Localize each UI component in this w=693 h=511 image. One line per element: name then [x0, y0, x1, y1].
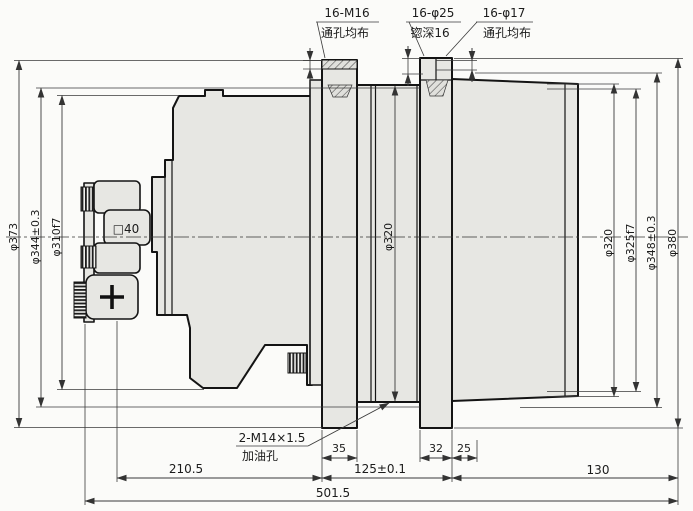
part-body [152, 58, 578, 428]
oil-plug-bolt [288, 353, 306, 373]
callout-cbore-note: 锪深16 [410, 25, 449, 40]
dim-phi344: φ344±0.3 [29, 210, 42, 265]
dim-125: 125±0.1 [354, 462, 406, 476]
callout-oil-spec: 2-M14×1.5 [239, 431, 306, 445]
callout-m16-spec: 16-M16 [324, 6, 369, 20]
dim-phi348: φ348±0.3 [645, 216, 658, 271]
dim-130: 130 [587, 463, 610, 477]
engineering-drawing: 16-M16 通孔均布 16-φ25 锪深16 16-φ17 通孔均布 2-M1… [0, 0, 693, 511]
bolt-head-mid [81, 246, 96, 268]
left-housing [152, 90, 312, 388]
dim-phi325: φ325f7 [624, 223, 637, 262]
flange-2 [420, 58, 452, 428]
neck [310, 80, 322, 385]
lug-top [94, 181, 140, 213]
dim-phi373: φ373 [7, 223, 20, 251]
callout-d17-note: 通孔均布 [483, 26, 531, 40]
thread-band [322, 60, 357, 69]
dim-501: 501.5 [316, 486, 350, 500]
dim-phi310: φ310f7 [50, 217, 63, 256]
right-drum [452, 79, 578, 401]
callout-d17-spec: 16-φ17 [483, 6, 526, 20]
dim-mid-phi320: φ320 [382, 223, 395, 251]
shaft-section-label: □40 [113, 222, 140, 236]
dim-phi380: φ380 [666, 229, 679, 257]
callout-m16-note: 通孔均布 [321, 26, 369, 40]
drawing-canvas: 16-M16 通孔均布 16-φ25 锪深16 16-φ17 通孔均布 2-M1… [0, 0, 693, 511]
callout-cbore-spec: 16-φ25 [412, 6, 455, 20]
dim-r-phi320: φ320 [602, 229, 615, 257]
dim-210: 210.5 [169, 462, 203, 476]
dim-25: 25 [457, 442, 471, 455]
callout-oil-note: 加油孔 [242, 449, 278, 463]
lug-mid [94, 243, 140, 273]
plug-spring [74, 282, 86, 318]
dim-35: 35 [332, 442, 346, 455]
flange-1 [322, 60, 357, 428]
dim-32: 32 [429, 442, 443, 455]
